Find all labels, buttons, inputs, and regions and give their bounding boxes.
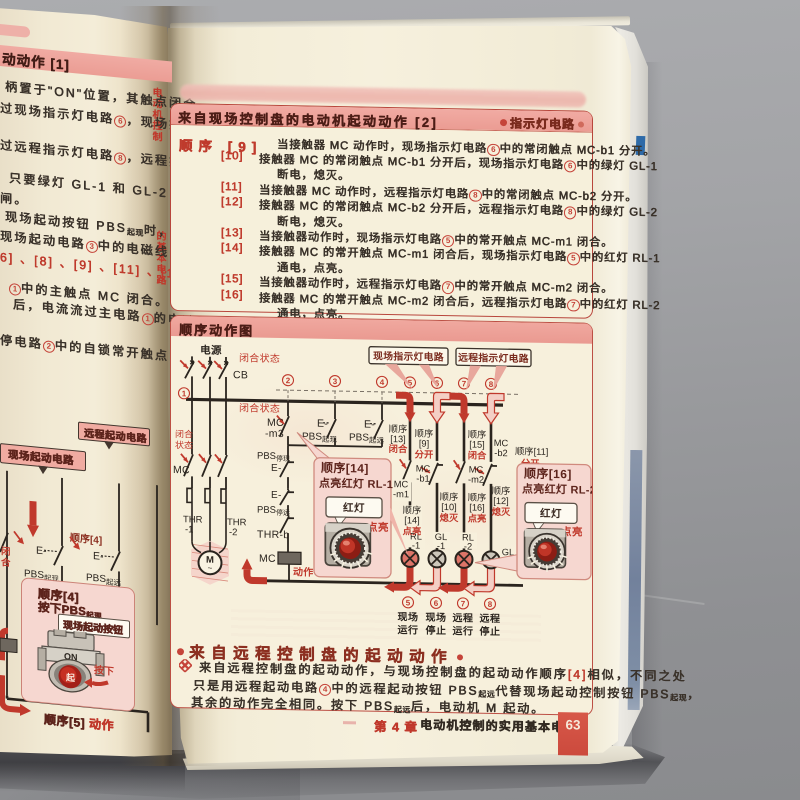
svg-text:动作: 动作 bbox=[293, 565, 314, 578]
svg-text:MC: MC bbox=[259, 553, 276, 565]
svg-text:-1: -1 bbox=[412, 540, 420, 550]
svg-text:[9]: [9] bbox=[419, 439, 429, 449]
svg-text:-m3: -m3 bbox=[265, 428, 284, 440]
svg-text:点亮红灯 RL-2: 点亮红灯 RL-2 bbox=[522, 481, 592, 496]
svg-text:1: 1 bbox=[182, 389, 187, 398]
svg-text:E-: E- bbox=[364, 419, 375, 431]
svg-text:熄灭: 熄灭 bbox=[440, 512, 459, 523]
svg-text:合: 合 bbox=[1, 556, 11, 569]
svg-text:E-: E- bbox=[36, 544, 47, 557]
svg-text:THR-b: THR-b bbox=[257, 529, 289, 542]
svg-text:顺序: 顺序 bbox=[468, 428, 487, 439]
svg-text:2: 2 bbox=[286, 376, 291, 385]
svg-text:顺序: 顺序 bbox=[389, 423, 408, 434]
svg-text:-m1: -m1 bbox=[393, 489, 409, 499]
svg-text:PBS停现: PBS停现 bbox=[257, 451, 290, 464]
svg-text:-2: -2 bbox=[229, 527, 237, 538]
svg-text:闭合: 闭合 bbox=[389, 443, 408, 454]
svg-text:现场指示灯电路: 现场指示灯电路 bbox=[373, 349, 444, 363]
svg-text:E-: E- bbox=[317, 418, 328, 430]
svg-text:闭合: 闭合 bbox=[175, 428, 193, 439]
svg-text:PBS停远: PBS停远 bbox=[257, 505, 290, 518]
svg-text:顺序[14]: 顺序[14] bbox=[321, 460, 369, 476]
svg-text:顺序: 顺序 bbox=[415, 427, 434, 438]
svg-text:点亮: 点亮 bbox=[468, 512, 487, 523]
svg-text:MC: MC bbox=[469, 464, 484, 474]
svg-text:6: 6 bbox=[434, 599, 439, 608]
svg-text:~: ~ bbox=[208, 564, 213, 573]
svg-text:分开: 分开 bbox=[415, 448, 434, 459]
svg-text:起: 起 bbox=[65, 671, 76, 683]
svg-text:7: 7 bbox=[462, 379, 467, 388]
svg-text:MC: MC bbox=[494, 438, 509, 448]
svg-text:顺序: 顺序 bbox=[403, 504, 422, 515]
svg-text:PBS起远: PBS起远 bbox=[349, 432, 385, 445]
svg-text:MC: MC bbox=[173, 464, 190, 476]
svg-text:8: 8 bbox=[488, 600, 493, 609]
svg-text:红灯: 红灯 bbox=[540, 507, 562, 520]
svg-text:-1: -1 bbox=[437, 541, 445, 551]
svg-text:E-: E- bbox=[271, 463, 282, 474]
svg-text:按下: 按下 bbox=[94, 663, 114, 678]
svg-text:顺序[16]: 顺序[16] bbox=[524, 465, 572, 481]
svg-text:远程指示灯电路: 远程指示灯电路 bbox=[458, 351, 529, 365]
svg-text:顺序[11]: 顺序[11] bbox=[515, 445, 548, 457]
svg-text:状态: 状态 bbox=[175, 439, 193, 450]
svg-text:-1: -1 bbox=[185, 524, 193, 535]
svg-text:闭合状态: 闭合状态 bbox=[239, 401, 280, 415]
svg-text:5: 5 bbox=[406, 598, 411, 607]
svg-text:闭合状态: 闭合状态 bbox=[239, 351, 280, 365]
svg-text:-m2: -m2 bbox=[468, 474, 484, 484]
svg-text:MC: MC bbox=[416, 464, 431, 474]
svg-text:熄灭: 熄灭 bbox=[492, 506, 511, 517]
svg-text:[14]: [14] bbox=[404, 515, 420, 525]
svg-text:-b1: -b1 bbox=[416, 474, 429, 484]
svg-text:顺序: 顺序 bbox=[440, 491, 459, 502]
svg-text:3: 3 bbox=[333, 377, 338, 386]
svg-text:闭合: 闭合 bbox=[468, 449, 487, 460]
svg-text:闭: 闭 bbox=[1, 545, 10, 558]
svg-text:E-: E- bbox=[271, 490, 282, 501]
svg-text:点亮红灯 RL-1: 点亮红灯 RL-1 bbox=[319, 476, 393, 491]
svg-text:电源: 电源 bbox=[200, 344, 222, 357]
svg-text:E-: E- bbox=[93, 550, 104, 563]
svg-text:7: 7 bbox=[461, 599, 466, 608]
svg-text:-2: -2 bbox=[464, 541, 472, 551]
svg-text:[15]: [15] bbox=[469, 439, 485, 449]
svg-text:红灯: 红灯 bbox=[343, 501, 365, 514]
svg-text:[16]: [16] bbox=[469, 502, 485, 512]
svg-text:MC: MC bbox=[394, 479, 409, 489]
svg-text:[10]: [10] bbox=[441, 502, 457, 512]
svg-text:CB: CB bbox=[233, 369, 248, 381]
svg-text:4: 4 bbox=[380, 378, 385, 387]
svg-text:点亮: 点亮 bbox=[403, 525, 422, 536]
svg-text:[12]: [12] bbox=[493, 496, 509, 506]
svg-text:顺序: 顺序 bbox=[492, 485, 511, 496]
svg-text:顺序: 顺序 bbox=[468, 491, 487, 502]
svg-text:[13]: [13] bbox=[390, 434, 406, 444]
svg-text:-b2: -b2 bbox=[494, 448, 507, 458]
svg-text:8: 8 bbox=[489, 380, 494, 389]
